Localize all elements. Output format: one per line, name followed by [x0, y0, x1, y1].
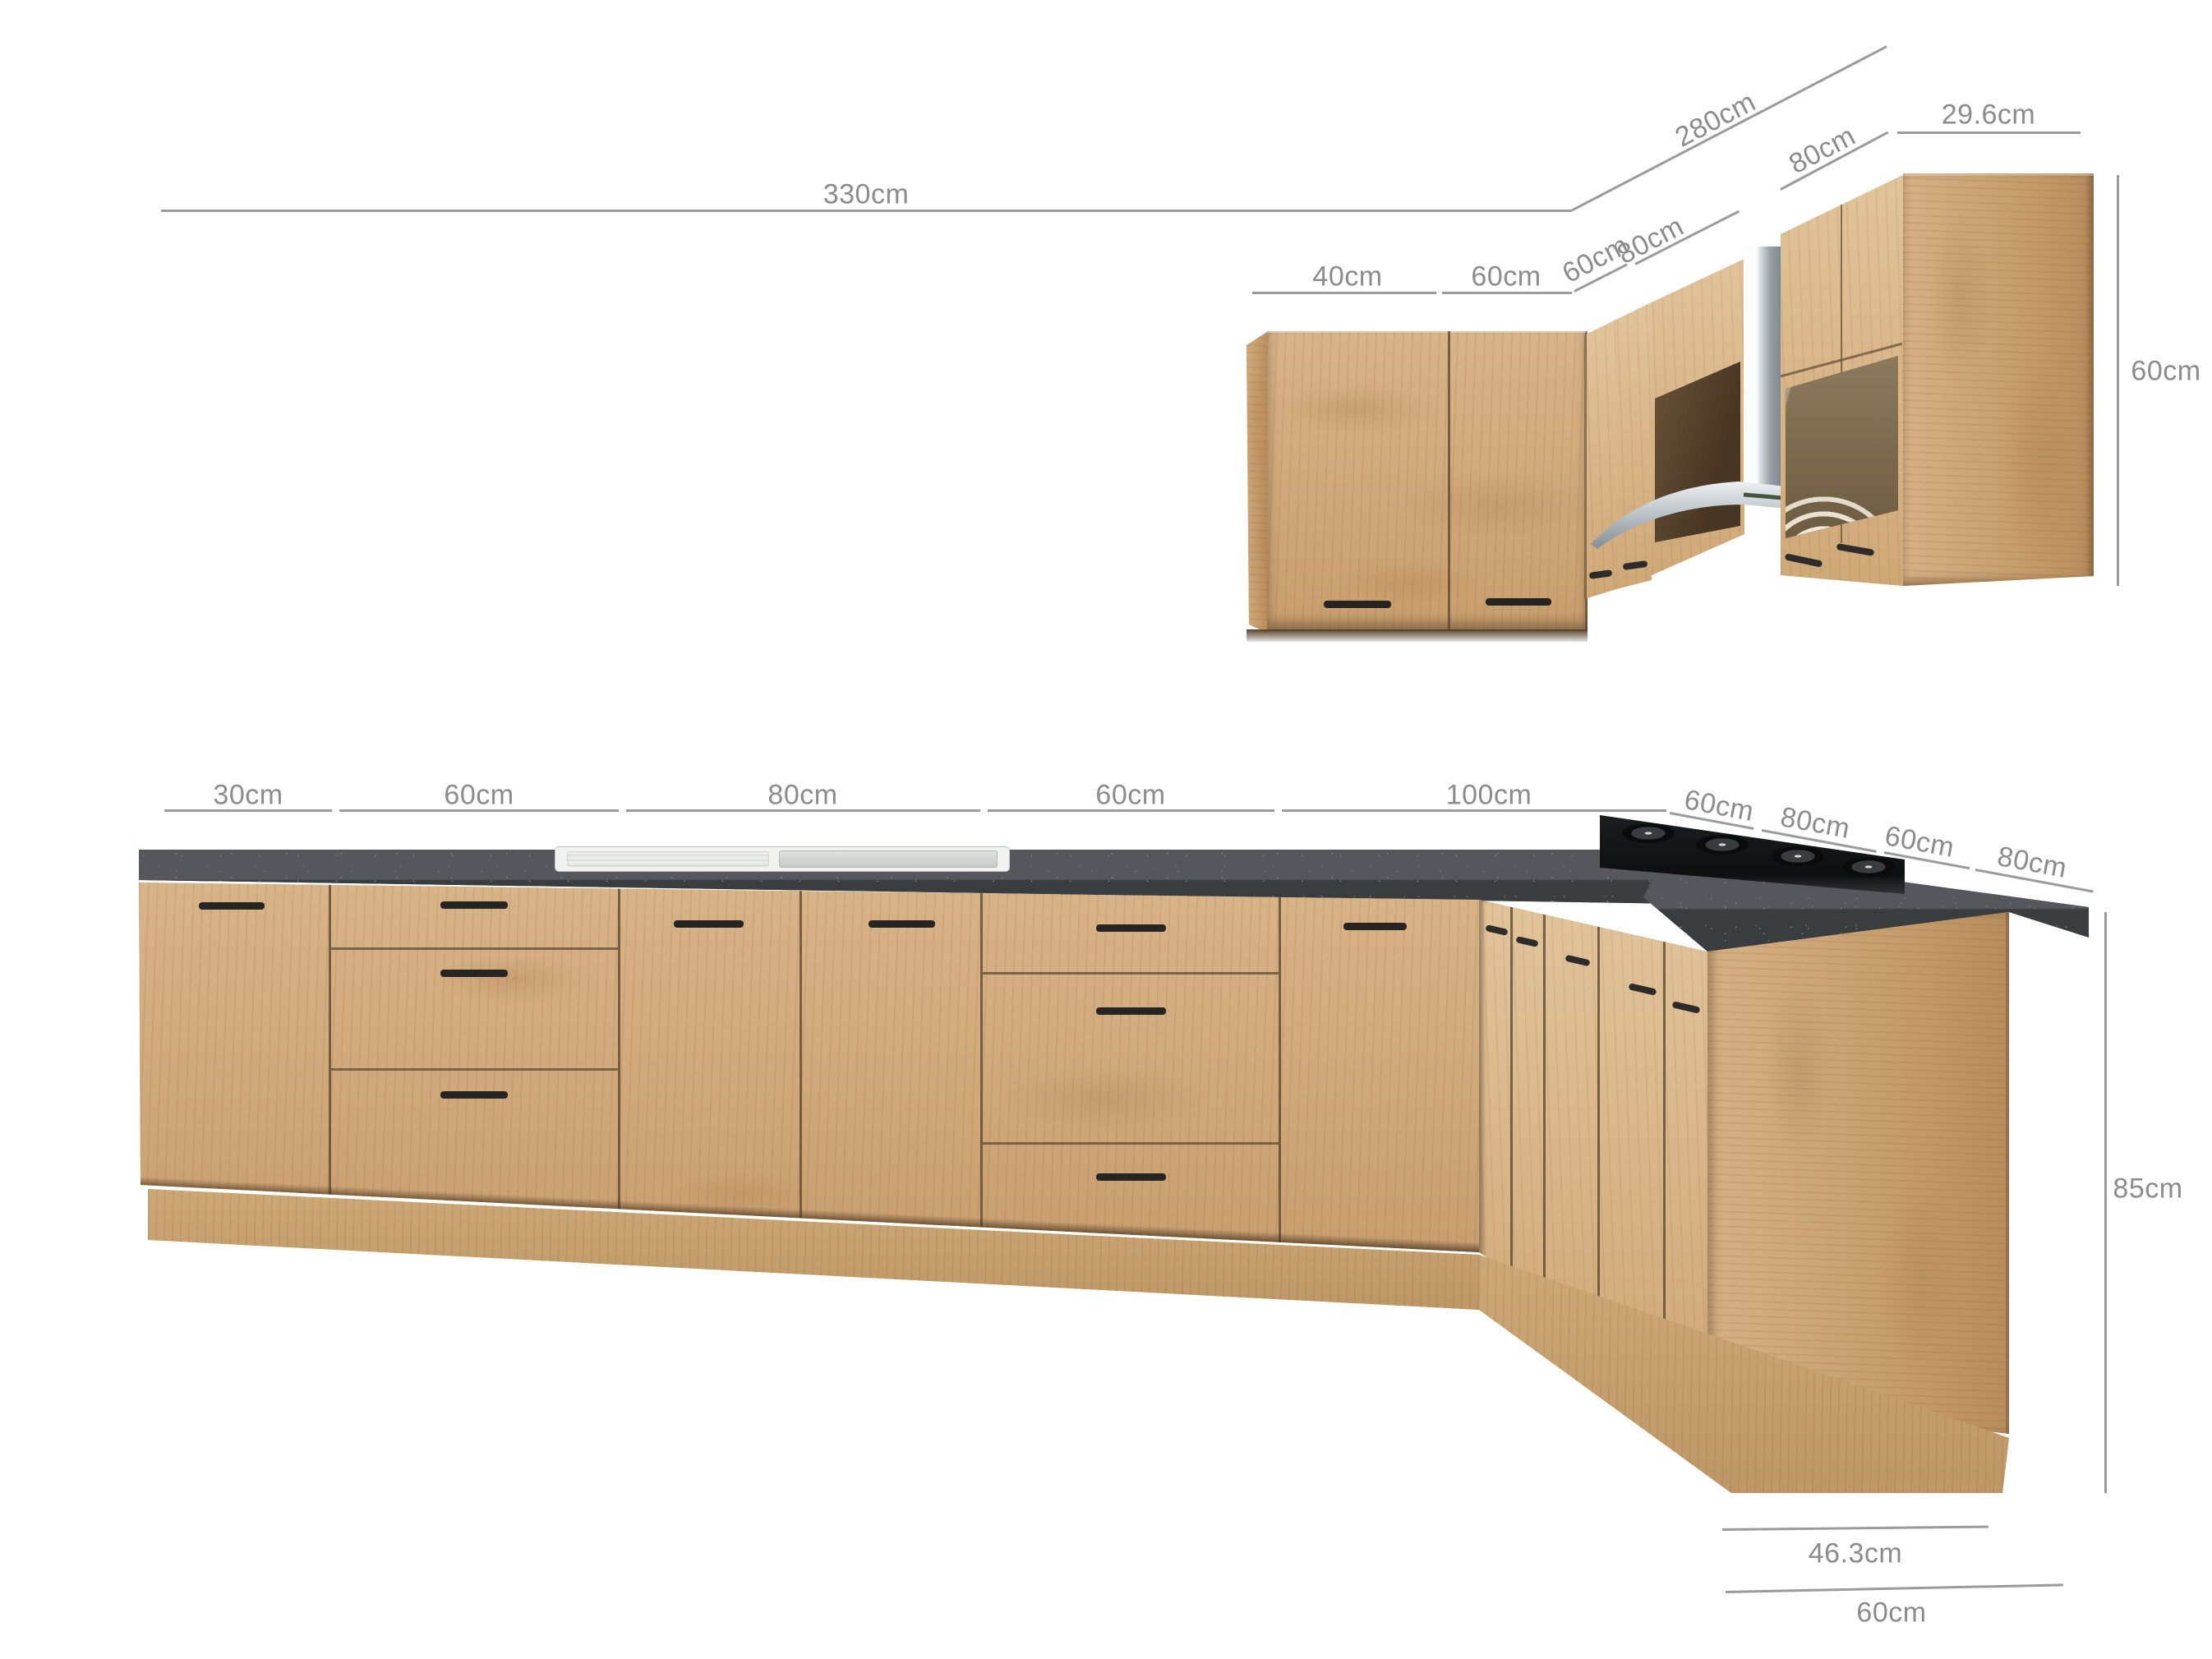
base-cabinet-seam — [980, 882, 983, 1254]
dim-line-wall-end-depth — [1897, 131, 2081, 134]
wall-cabinet-front-face — [1267, 331, 1588, 631]
base-cabinet-seam — [618, 882, 620, 1254]
glass-window — [1786, 349, 1898, 538]
base-door-handle — [1515, 936, 1538, 947]
dim-label-base-side-60b: 60cm — [1883, 820, 1957, 864]
wall-door-handle — [1486, 598, 1551, 606]
base-door-handle — [674, 920, 744, 928]
sink-bowl — [779, 850, 998, 868]
dim-label-base-end-depth: 46.3cm — [1809, 1538, 1903, 1570]
dim-label-base-side-60a: 60cm — [1682, 784, 1757, 828]
drawer-seam — [983, 1142, 1279, 1145]
dim-label-base-side-80a: 80cm — [1778, 801, 1853, 846]
dim-label-base-end-width: 60cm — [1856, 1597, 1926, 1629]
dim-label-wall-height: 60cm — [2131, 356, 2200, 388]
base-door-handle — [1343, 923, 1407, 930]
kitchen-dimension-diagram: 330cm 280cm 29.6cm 80cm 40cm 60cm 60cm 8… — [0, 0, 2212, 1659]
drawer-seam — [331, 947, 618, 950]
base-door-handle — [1672, 1001, 1701, 1013]
base-door-handle — [199, 902, 265, 910]
base-drawer-handle — [440, 901, 508, 909]
hob-burner — [1696, 835, 1749, 855]
drawer-seam — [983, 972, 1279, 975]
drawer-seam — [331, 1068, 618, 1071]
base-drawer-handle — [1096, 1173, 1166, 1181]
base-cabinet-seam — [1279, 882, 1281, 1254]
dim-label-base-height: 85cm — [2113, 1173, 2182, 1205]
base-door-handle — [1565, 955, 1590, 967]
base-door-handle — [1485, 924, 1508, 936]
dim-label-wall-front-40: 40cm — [1312, 261, 1382, 293]
dim-label-base-60a: 60cm — [444, 780, 514, 812]
dim-line-wall-height — [2117, 175, 2119, 586]
base-door-handle — [869, 920, 935, 928]
dim-line-base-height — [2104, 912, 2107, 1493]
dim-label-base-60b: 60cm — [1095, 780, 1165, 812]
base-cabinet-seam — [800, 882, 802, 1254]
base-door-handle — [1629, 983, 1657, 995]
wall-door-handle — [1785, 553, 1823, 567]
base-drawer-handle — [1096, 924, 1166, 932]
wall-door-handle — [1623, 560, 1648, 570]
hob-burner — [1772, 846, 1824, 866]
wall-door-handle — [1836, 543, 1875, 556]
dim-label-base-side-80b: 80cm — [1995, 841, 2070, 885]
dim-label-base-100: 100cm — [1446, 780, 1532, 812]
dim-label-base-80a: 80cm — [767, 780, 837, 812]
dim-label-wall-corner-80: 80cm — [1612, 210, 1689, 271]
wall-door-handle — [1324, 601, 1391, 608]
wall-cabinet-glass-unit — [1781, 173, 1903, 586]
dim-label-base-30: 30cm — [213, 780, 283, 812]
hob-burner — [1842, 857, 1895, 877]
base-drawer-handle — [440, 970, 508, 977]
base-cabinet-front-faces — [139, 882, 1479, 1254]
wall-cabinet-end-side-panel — [1903, 173, 2094, 586]
base-drawer-handle — [440, 1091, 508, 1099]
dim-line-base-end-width — [1726, 1583, 2063, 1593]
dim-line-base-end-depth — [1722, 1526, 1988, 1531]
wall-cabinet-left-side-panel — [1244, 332, 1269, 634]
dim-label-wall-hood: 80cm — [1784, 120, 1861, 181]
wall-cabinet-under-shadow — [1247, 629, 1588, 642]
base-drawer-handle — [1096, 1007, 1166, 1015]
wall-door-handle — [1589, 569, 1613, 579]
kitchen-sink — [555, 846, 1010, 872]
hob-burner — [1622, 823, 1675, 843]
dim-label-wall-front-60: 60cm — [1471, 261, 1541, 293]
wall-door-seam — [1448, 331, 1450, 631]
dim-label-wall-total: 330cm — [823, 179, 910, 211]
sink-drainer — [567, 851, 769, 867]
dim-label-wall-end-depth: 29.6cm — [1942, 99, 2036, 131]
dim-label-wall-side-total: 280cm — [1671, 86, 1762, 154]
